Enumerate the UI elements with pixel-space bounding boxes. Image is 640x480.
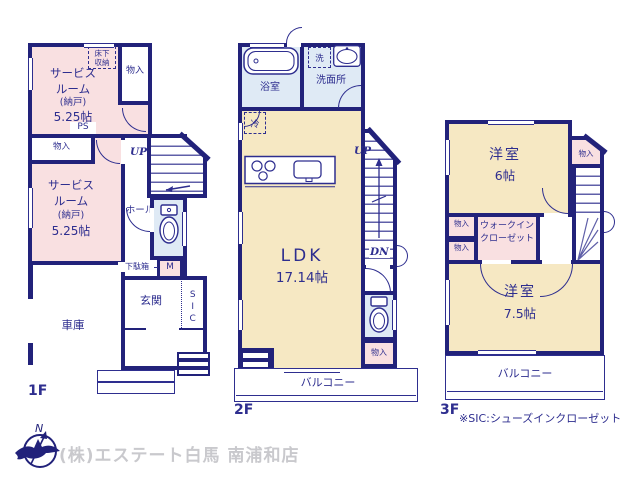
ldk-counter-slot-2 [243, 362, 268, 367]
kitchen-counter-icon [244, 155, 336, 188]
window-2f-toilet [392, 300, 397, 330]
window-1f-left-a [28, 58, 33, 90]
stairs-2f-door-swing [397, 245, 408, 267]
garage-wall-segment-1 [28, 261, 33, 299]
washer-box: 洗 [308, 47, 331, 68]
window-2f-bath-top [250, 43, 284, 48]
underfloor-storage-line1: 床下 [95, 49, 110, 58]
sic-divider [181, 281, 182, 330]
balcony-2f-rail-line [236, 395, 416, 396]
stairs-1f-arrow-icon [150, 140, 204, 196]
shoe-box-leader-line [154, 267, 158, 268]
meter-label: M [157, 262, 183, 274]
garage-wall-segment-2 [28, 343, 33, 365]
side-steps [177, 352, 210, 376]
washbasin-icon [333, 45, 361, 67]
stairs-3f-winder-icon [576, 216, 600, 262]
service-room-b-name1: サービス [31, 178, 111, 193]
window-1f-top [84, 43, 114, 48]
stairs-3f-door-swing [604, 211, 615, 233]
shoe-box-label: 下駄箱 [118, 262, 156, 272]
ldk-counter-slot-1 [243, 353, 268, 358]
service-room-b-size: 5.25帖 [31, 224, 111, 240]
top-door-arc-2f [286, 27, 302, 43]
ps-label: PS [70, 122, 96, 134]
balcony-2f-label: バルコニー [286, 376, 370, 390]
entrance-step-1 [97, 370, 175, 382]
service-b-door-opening [121, 140, 125, 164]
closet-b-label: 物入 [28, 142, 95, 153]
room-75-name: 洋室 [492, 283, 548, 301]
closet-3f-a-label: 物入 [570, 149, 602, 159]
floor-plan-canvas: 物入 床下 収納 サービス ルーム (納戸) 5.25帖 PS 物入 サービス … [0, 0, 640, 480]
wic-label-line2: クローゼット [477, 234, 537, 246]
washer-label: 洗 [315, 52, 324, 64]
entrance-label: 玄関 [129, 294, 173, 308]
ldk-name-label: LDK [266, 245, 338, 267]
stairs-2f-arrow-icon [363, 150, 397, 254]
closet-3f-c-label: 物入 [447, 243, 476, 253]
bathtub-icon [243, 47, 299, 75]
side-step-bar-2 [179, 366, 208, 370]
closet-2f-label: 物入 [361, 348, 397, 358]
window-3f-left-b [445, 280, 450, 325]
room-ldk [238, 107, 365, 372]
service-room-a-name1: サービス [30, 66, 116, 81]
compass-n-label: N [35, 422, 43, 435]
room-75-size: 7.5帖 [490, 306, 550, 322]
room-6-size: 6帖 [481, 168, 529, 184]
balcony-3f-rail-line [447, 391, 603, 392]
window-2f-left-a [238, 123, 243, 140]
service-room-a-name2: ルーム [30, 82, 116, 97]
toilet-1f-door-opening [150, 208, 154, 232]
garage-label: 車庫 [50, 318, 96, 333]
stairs-3f-treads [576, 168, 600, 218]
service-room-b-name2: ルーム [31, 194, 111, 209]
toilet-1f-icon [158, 204, 180, 250]
service-room-b-sub: (納戸) [31, 210, 111, 222]
floor2-label: 2F [234, 402, 253, 418]
window-2f-left-c [238, 300, 243, 330]
sic-label: SIC [186, 288, 198, 328]
window-3f-left-a [445, 140, 450, 175]
balcony-3f-label: バルコニー [483, 367, 567, 381]
compass-north-icon: N [13, 420, 65, 474]
fridge-box: 冷 [244, 112, 266, 134]
floor1-label: 1F [28, 383, 47, 399]
fridge-label: 冷 [250, 117, 259, 130]
room-6-name: 洋室 [477, 146, 533, 164]
closet-a-label: 物入 [118, 66, 152, 78]
top-door-opening-2f [287, 43, 301, 47]
ldk-size-label: 17.14帖 [260, 270, 344, 288]
window-1f-toilet [182, 212, 187, 246]
floor3-label: 3F [440, 402, 459, 418]
washroom-label: 洗面所 [302, 74, 360, 87]
window-2f-balcony-door [284, 368, 340, 373]
window-3f-top [488, 120, 534, 125]
window-1f-left-b [28, 188, 33, 228]
hall-3f [536, 213, 576, 264]
entrance-step-2 [97, 382, 175, 394]
service-room-a-sub: (納戸) [30, 97, 116, 109]
sic-note: ※SIC:シューズインクローゼット [459, 412, 621, 426]
bath-label: 浴室 [245, 81, 295, 94]
company-name: (株)エステート白馬 南浦和店 [59, 441, 299, 466]
side-step-bar-1 [179, 358, 208, 362]
window-3f-bottom [478, 350, 536, 355]
toilet-2f-icon [368, 296, 390, 338]
window-2f-left-b [238, 212, 243, 244]
stairs-1f-up-label: UP [130, 146, 147, 158]
wic-label-line1: ウォークイン [477, 221, 537, 233]
closet-3f-b-label: 物入 [447, 219, 476, 229]
